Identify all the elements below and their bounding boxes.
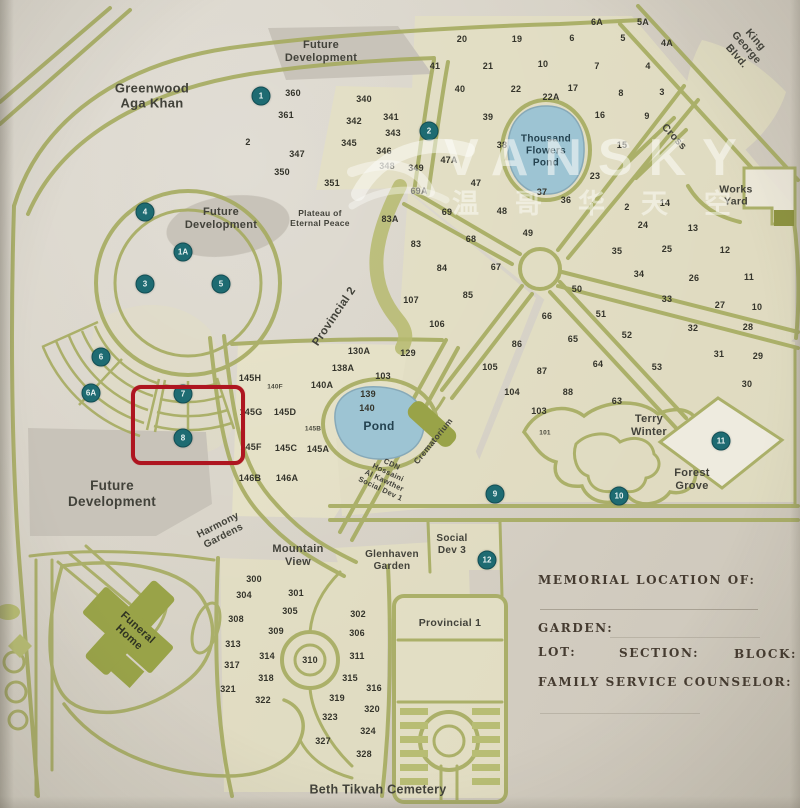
memorial-location-label: MEMORIAL LOCATION OF: (538, 573, 756, 587)
counselor-write-line (540, 713, 700, 714)
lot-label: LOT: (538, 645, 576, 659)
section-label: SECTION: (619, 646, 699, 660)
cemetery-map-photo: 3603612340342341343345346347348349350351… (0, 0, 800, 808)
family-service-counselor-label: FAMILY SERVICE COUNSELOR: (538, 675, 792, 689)
memorial-write-line (540, 609, 758, 610)
memorial-form: MEMORIAL LOCATION OF: GARDEN: LOT: SECTI… (0, 0, 800, 808)
block-label: BLOCK: (734, 647, 797, 661)
garden-label: GARDEN: (538, 621, 613, 635)
garden-write-line (610, 637, 760, 638)
